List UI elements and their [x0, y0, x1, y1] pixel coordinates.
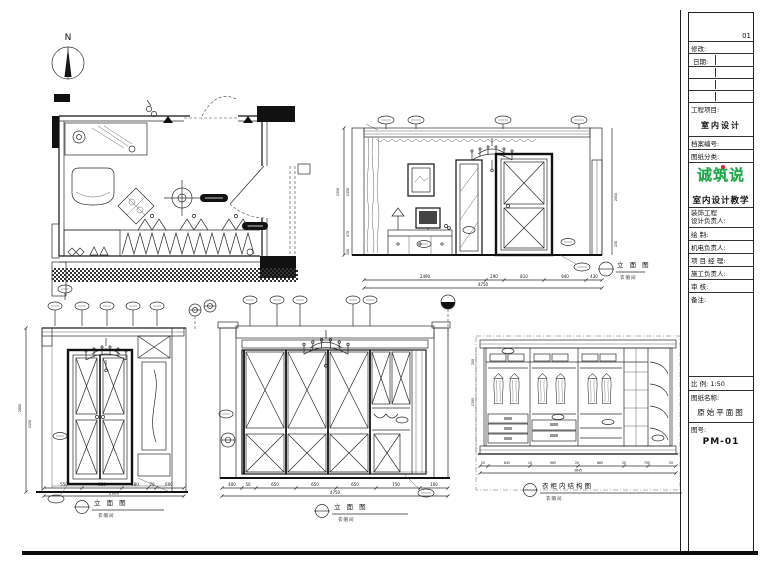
ceiling-marker-icon: [163, 116, 173, 123]
plan-ottoman: [118, 188, 154, 224]
dresser: [388, 208, 452, 255]
svg-text:290: 290: [490, 274, 498, 279]
svg-text:2050: 2050: [614, 193, 618, 201]
drawing-title: 衣柜内结构图: [542, 481, 593, 490]
revision-entry-row: [689, 90, 753, 102]
height-tag: [200, 194, 228, 202]
svg-text:230: 230: [614, 241, 618, 247]
svg-text:650: 650: [271, 482, 279, 487]
wardrobe-structure: 200 1500 20 845 20 965 20 865 20 750 20 …: [474, 332, 690, 504]
drafter-row: 绘 制:: [689, 227, 753, 240]
drawing-subtitle: 衣帽间: [338, 516, 355, 523]
switch-symbol: [146, 100, 156, 117]
drawing-title: 立 面 图: [94, 498, 128, 507]
svg-text:400: 400: [228, 482, 236, 487]
svg-text:200: 200: [471, 359, 475, 365]
review-row: 审 核:: [689, 279, 753, 292]
dimension-bottom: 2490 290 810 940 430 4750: [362, 274, 603, 290]
file-number-row: 档案编号:: [689, 136, 753, 149]
date-label: 日期:: [691, 55, 715, 65]
svg-text:940: 940: [561, 274, 569, 279]
hanger-zigzag: [122, 233, 254, 254]
svg-text:810: 810: [520, 274, 528, 279]
plan-walls: [52, 94, 310, 296]
door-handle-icon: [95, 415, 98, 418]
scale-row: 比 例: 1:50: [689, 376, 753, 390]
remarks-cell: 备注:: [689, 292, 753, 376]
sheet-name-value: 原始平面图: [691, 407, 751, 418]
svg-text:20: 20: [481, 461, 485, 465]
date-row: 日期:: [689, 53, 753, 66]
drawing-subtitle: 衣帽间: [98, 512, 115, 519]
svg-text:650: 650: [351, 482, 359, 487]
svg-text:2900: 2900: [109, 491, 120, 496]
svg-text:20: 20: [575, 461, 579, 465]
svg-text:470: 470: [346, 231, 350, 237]
page-number: 01: [689, 13, 753, 41]
double-door: [48, 350, 132, 503]
svg-text:480: 480: [131, 482, 139, 487]
drawing-subtitle: 衣帽间: [546, 495, 563, 502]
dimension-right: 2050 230: [612, 128, 618, 255]
svg-text:4750: 4750: [478, 282, 489, 287]
svg-text:965: 965: [550, 461, 556, 465]
drawing-label: 立 面 图 衣帽间: [74, 498, 164, 519]
me-lead-row: 机电负责人:: [689, 240, 753, 253]
plan-wardrobe: [64, 214, 260, 256]
svg-text:2490: 2490: [420, 274, 431, 279]
svg-text:2350: 2350: [336, 188, 340, 196]
svg-text:810: 810: [98, 482, 106, 487]
drawing-sheet: N: [0, 0, 760, 570]
dimension-left: 2800 2150: [18, 326, 32, 493]
svg-text:20: 20: [149, 482, 155, 487]
project-value: 室内设计: [691, 120, 751, 131]
logo-dot-icon: [721, 165, 725, 169]
svg-text:600: 600: [165, 482, 173, 487]
elevation-b: 2800 2150 550 810 480 20 600 2900 立 面 图 …: [16, 296, 212, 522]
floor-plan: [52, 106, 310, 302]
mirror: [456, 160, 482, 255]
project-cell: 工程项目: 室内设计: [689, 102, 753, 136]
svg-text:430: 430: [590, 274, 598, 279]
drawing-title: 立 面 图: [617, 260, 651, 269]
scale-label: 比 例:: [691, 380, 708, 388]
drawing-label: 立 面 图 衣帽间: [598, 260, 651, 281]
logo: 诚筑说: [697, 164, 745, 185]
svg-text:4750: 4750: [330, 490, 341, 495]
north-arrow: N: [46, 28, 94, 100]
svg-text:750: 750: [392, 482, 400, 487]
svg-text:750: 750: [644, 461, 650, 465]
side-cabinet: [138, 336, 170, 492]
svg-text:20: 20: [622, 461, 626, 465]
room-shell: [36, 328, 188, 492]
wardrobe-doors: [242, 350, 426, 474]
cabinet-handle: [153, 370, 157, 442]
picture-frame: [408, 164, 434, 196]
callout-bubbles: [204, 295, 455, 338]
plan-checker-band: [52, 268, 298, 282]
curtain-drapes: [367, 137, 379, 253]
svg-text:100: 100: [430, 482, 438, 487]
drawing-label: 立 面 图 衣帽间: [314, 502, 408, 523]
dimension-bottom: 20 845 20 965 20 865 20 750 20 3645: [478, 461, 677, 475]
drawers: [488, 414, 622, 443]
svg-text:865: 865: [597, 461, 603, 465]
project-manager-row: 项 目 经 理:: [689, 253, 753, 266]
door-handle-icon: [101, 415, 104, 418]
project-label: 工程项目:: [691, 104, 751, 114]
dimension-left: 2350 1450 470 100: [336, 126, 350, 256]
design-lead-row: 装饰工程 设计负责人:: [689, 207, 753, 227]
sheet-number-cell: 图号: PM-01: [689, 422, 753, 450]
door-handle-icon: [506, 204, 509, 207]
door: [496, 154, 590, 271]
side-shelves: [624, 348, 668, 446]
svg-text:1500: 1500: [471, 398, 475, 406]
view-direction-icon: [441, 302, 455, 309]
shell: [218, 322, 450, 478]
ceiling-light-icon: [164, 180, 200, 216]
svg-text:20: 20: [669, 461, 673, 465]
crown-scallops: [376, 139, 536, 142]
category-row: 图纸分类:: [689, 149, 753, 162]
sheet-number-value: PM-01: [691, 437, 751, 447]
logo-cell: 诚筑说 室内设计教学: [689, 162, 753, 207]
drawing-title: 立 面 图: [334, 502, 368, 511]
callout-bubbles: [48, 302, 201, 330]
svg-text:3645: 3645: [574, 469, 582, 473]
elevation-c: 400 50 650 650 650 750 100 4750 立 面 图 衣帽…: [204, 292, 468, 522]
svg-text:650: 650: [311, 482, 319, 487]
north-label: N: [65, 33, 72, 43]
svg-text:1450: 1450: [346, 188, 350, 196]
plan-chair: [72, 168, 114, 205]
title-block: 01 修改: 日期: 工程项目: 室内设计 档案编号: 图纸分类: 诚筑说 室内…: [688, 12, 754, 552]
chandelier-icon: [303, 330, 349, 367]
dimension-bottom: 400 50 650 650 650 750 100 4750: [220, 482, 449, 498]
scale-value: 1:50: [710, 380, 725, 388]
dimension-left: 200 1500: [471, 348, 476, 454]
sheet-name-cell: 图纸名称: 原始平面图: [689, 390, 753, 422]
revision-row: 修改:: [689, 41, 753, 53]
elevation-a: 2350 1450 470 100 2050 230 2490 290 810 …: [336, 112, 646, 308]
svg-text:845: 845: [504, 461, 510, 465]
svg-text:2800: 2800: [18, 404, 22, 412]
logo-subtitle: 室内设计教学: [692, 194, 749, 206]
drawing-label: 衣柜内结构图 衣帽间: [522, 481, 682, 502]
hanging-clothes: [494, 374, 612, 404]
svg-text:20: 20: [528, 461, 532, 465]
revision-entry-row: [689, 66, 753, 78]
svg-text:50: 50: [245, 482, 251, 487]
svg-text:2150: 2150: [28, 420, 32, 428]
lamp-icon: [392, 208, 404, 216]
sheet-frame-line: [680, 10, 681, 554]
ceiling-marker-icon: [243, 116, 253, 123]
revision-entry-row: [689, 78, 753, 90]
sheet-name-label: 图纸名称:: [691, 392, 751, 402]
sheet-number-label: 图号:: [691, 424, 751, 434]
plan-desk: [65, 123, 147, 155]
svg-text:100: 100: [346, 249, 350, 255]
date-value: [715, 55, 751, 65]
svg-text:550: 550: [60, 482, 68, 487]
sheet-bottom-bar: [22, 551, 758, 555]
drawing-subtitle: 衣帽间: [620, 274, 637, 281]
construction-lead-row: 施工负责人:: [689, 266, 753, 279]
